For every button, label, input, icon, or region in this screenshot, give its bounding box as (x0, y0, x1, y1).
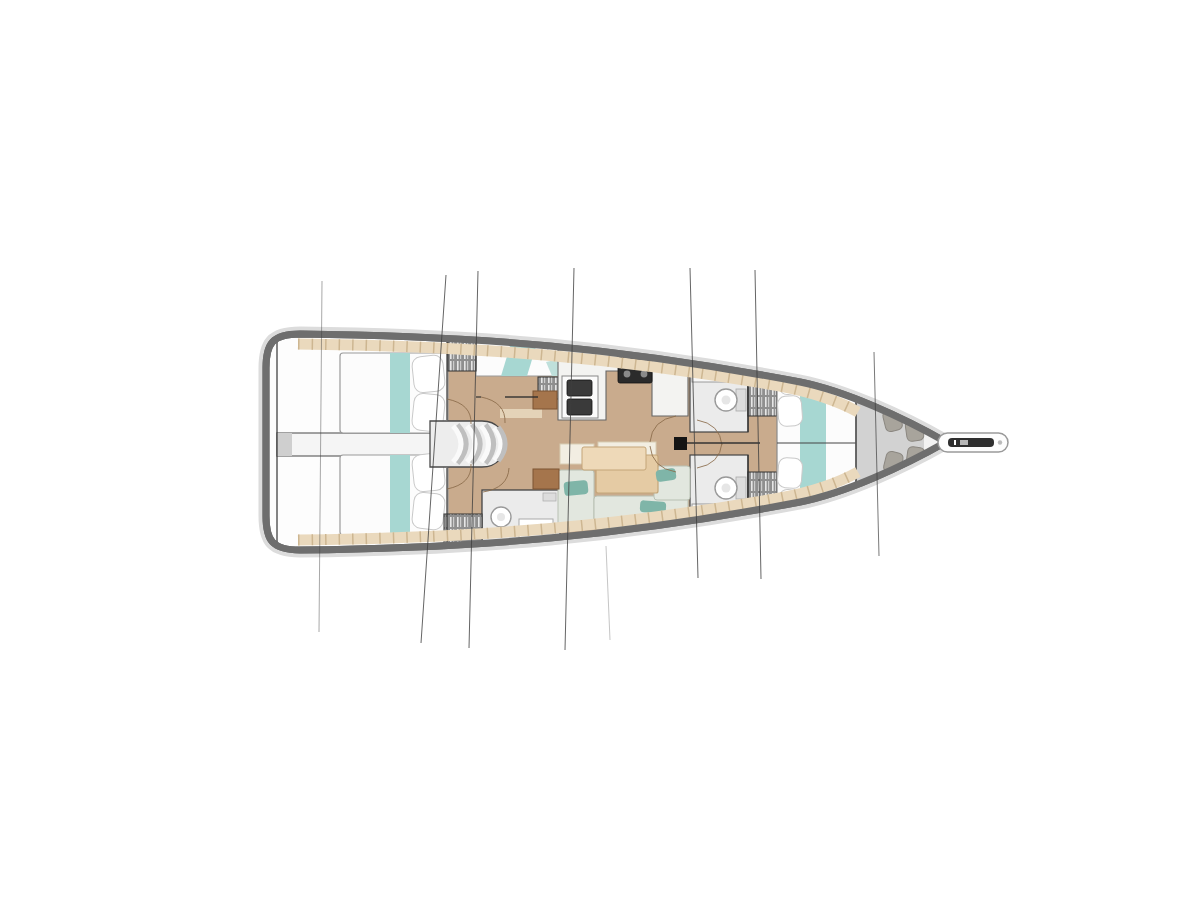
yacht-floor-plan-diagram (0, 0, 1200, 900)
fwd-pillow-2 (777, 395, 803, 427)
salon-table-leaf (582, 447, 646, 470)
aft-port-bed-runner (390, 353, 410, 433)
aft-stbd-bed-runner (390, 455, 410, 535)
mast-foot (674, 437, 687, 450)
aft-stbd-pillow-2 (411, 492, 446, 531)
galley-end-cabinet (533, 391, 557, 409)
salon-cushion-1 (563, 480, 588, 496)
interior-layout (277, 336, 946, 549)
stove-burner-3 (624, 371, 631, 378)
stove-burner-4 (641, 371, 648, 378)
floor-step (500, 409, 542, 418)
bow-locker (856, 396, 946, 489)
bowsprit (938, 433, 1008, 452)
yacht-floor-plan-page (0, 0, 1200, 900)
companionway-stairs (430, 421, 505, 467)
fwd-pillow-3 (777, 457, 803, 489)
stair-steps (453, 426, 504, 462)
engine-corridor-cap (277, 433, 292, 456)
head3-vent (543, 493, 556, 501)
chart-desk (533, 469, 559, 489)
rig-line-8 (606, 546, 610, 640)
engine-corridor (277, 433, 448, 456)
